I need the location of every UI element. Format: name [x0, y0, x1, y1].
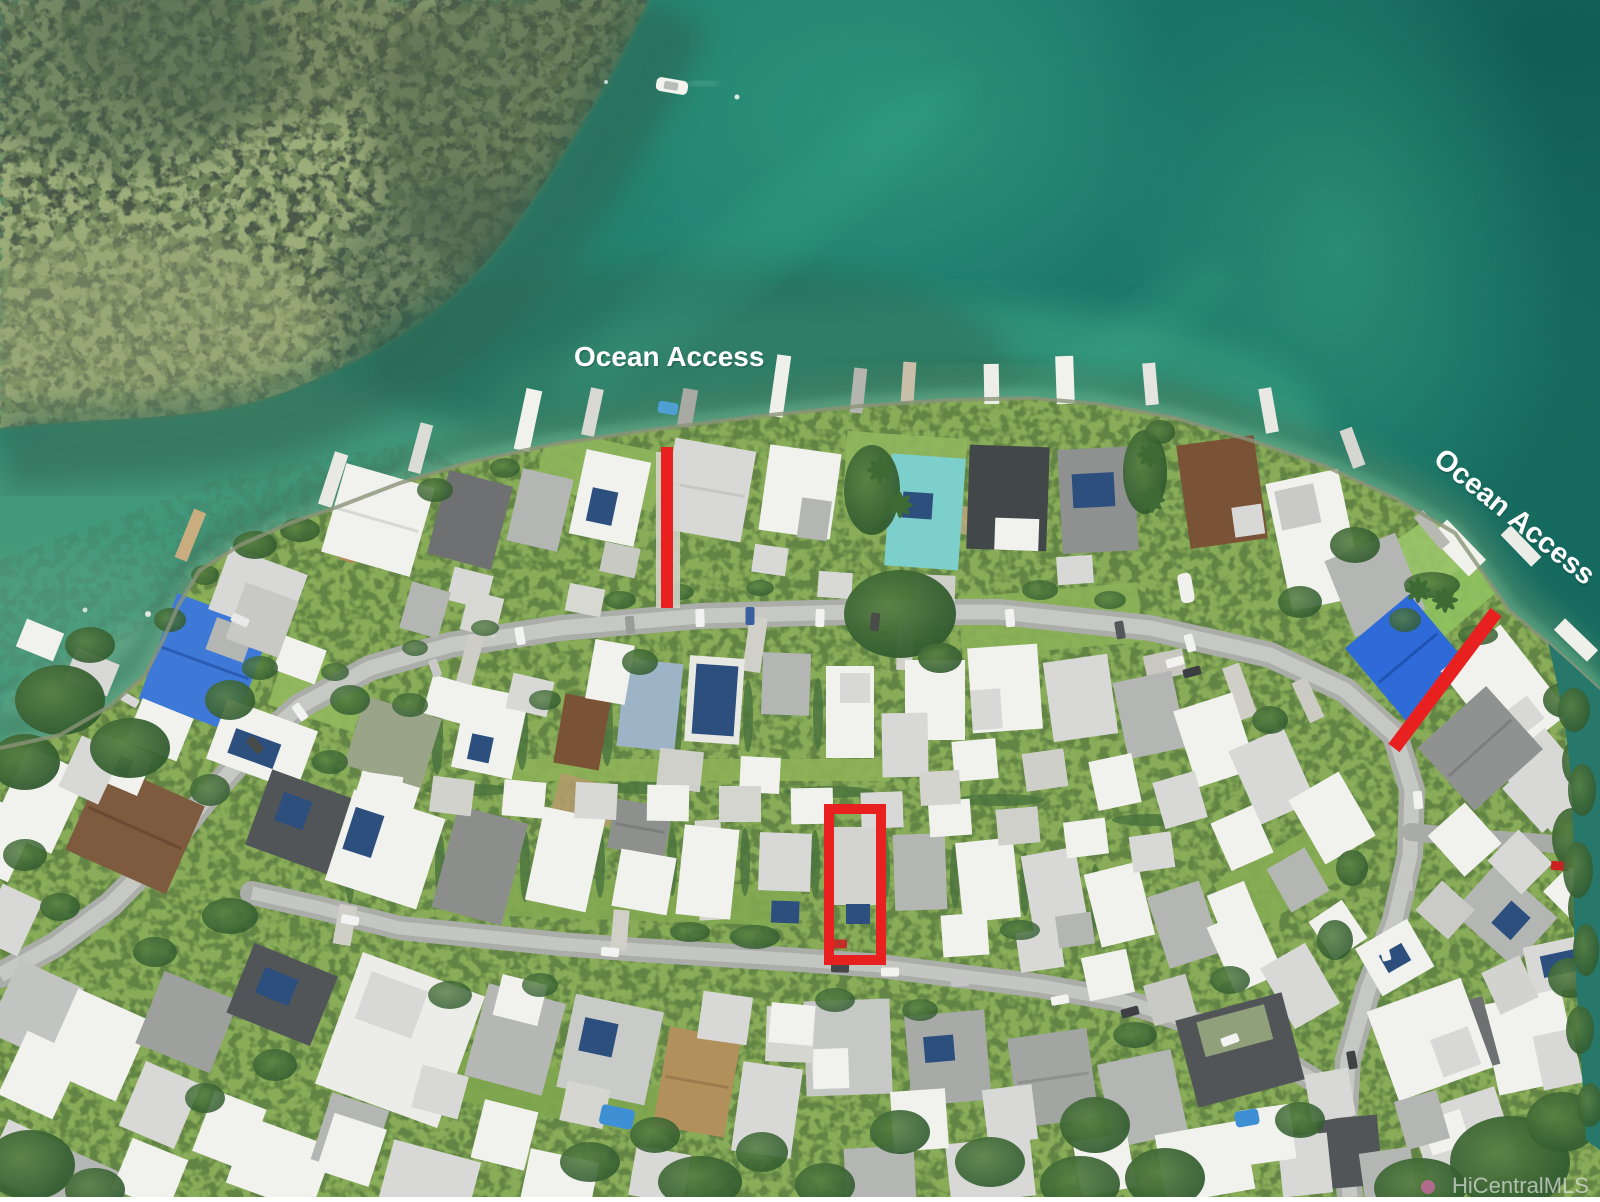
svg-text:Ocean Access: Ocean Access — [574, 341, 764, 372]
svg-text:HiCentralMLS: HiCentralMLS — [1452, 1173, 1589, 1197]
